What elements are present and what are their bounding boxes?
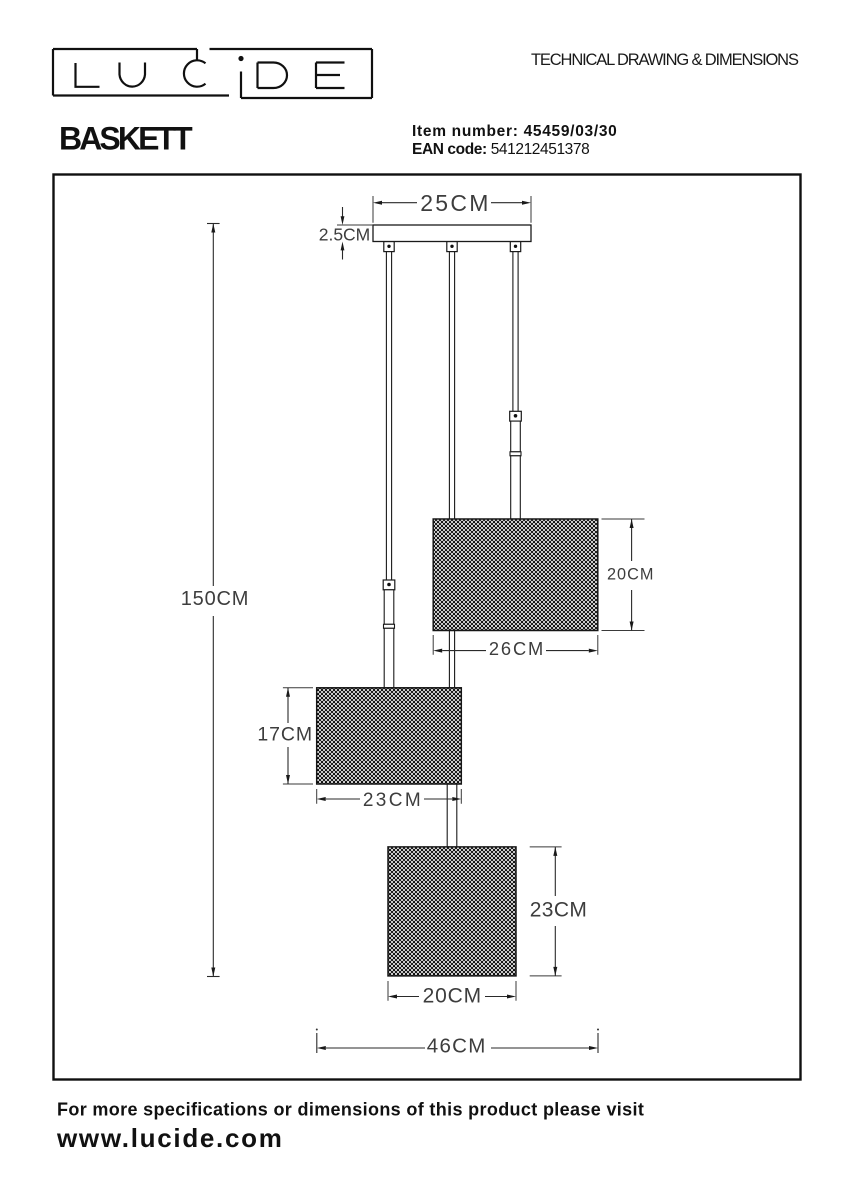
svg-text:20CM: 20CM bbox=[607, 566, 654, 584]
svg-text:46CM: 46CM bbox=[427, 1034, 487, 1057]
svg-text:www.lucide.com: www.lucide.com bbox=[56, 1123, 284, 1153]
svg-text:26CM: 26CM bbox=[489, 638, 545, 659]
svg-text:23CM: 23CM bbox=[530, 899, 588, 922]
svg-text:150CM: 150CM bbox=[181, 588, 249, 610]
svg-text:23CM: 23CM bbox=[363, 790, 423, 811]
svg-text:EAN code: 541212451378: EAN code: 541212451378 bbox=[412, 141, 589, 158]
svg-text:BASKETT: BASKETT bbox=[59, 121, 193, 157]
svg-text:TECHNICAL DRAWING & DIMENSIONS: TECHNICAL DRAWING & DIMENSIONS bbox=[531, 51, 799, 69]
svg-text:2.5CM: 2.5CM bbox=[319, 224, 371, 244]
svg-text:20CM: 20CM bbox=[423, 985, 482, 1008]
svg-text:17CM: 17CM bbox=[257, 724, 313, 746]
svg-text:25CM: 25CM bbox=[420, 190, 491, 216]
svg-text:Item number: 45459/03/30: Item number: 45459/03/30 bbox=[412, 123, 617, 140]
svg-text:For more specifications or dim: For more specifications or dimensions of… bbox=[57, 1100, 644, 1120]
